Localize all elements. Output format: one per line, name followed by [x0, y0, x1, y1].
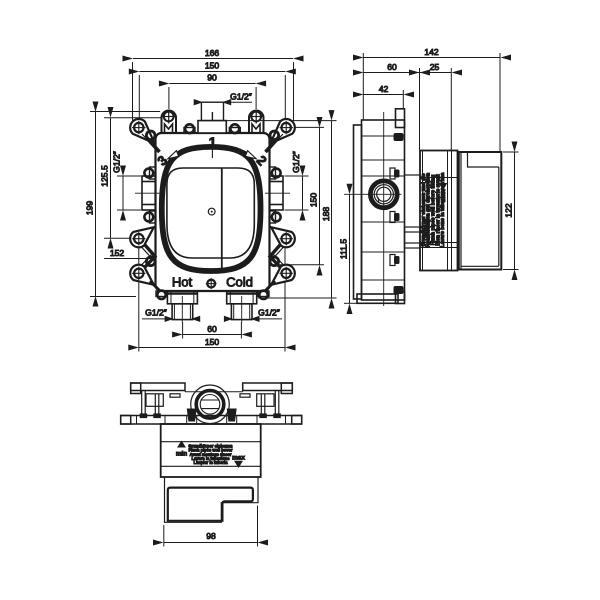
- svg-text:G1/2″: G1/2″: [145, 307, 167, 317]
- svg-text:122: 122: [504, 203, 514, 218]
- svg-text:42: 42: [379, 84, 389, 94]
- svg-text:G1/2″: G1/2″: [230, 92, 252, 102]
- svg-text:111.5: 111.5: [339, 239, 349, 259]
- svg-text:90: 90: [207, 73, 217, 83]
- svg-text:1: 1: [209, 134, 217, 150]
- svg-text:199: 199: [85, 201, 95, 216]
- svg-text:G1/2″: G1/2″: [291, 151, 301, 173]
- svg-text:max: max: [232, 455, 245, 462]
- svg-text:G1/2″: G1/2″: [112, 151, 122, 173]
- svg-text:60: 60: [387, 62, 397, 72]
- svg-text:max: max: [440, 189, 447, 202]
- svg-text:min: min: [176, 451, 187, 458]
- svg-text:Hot: Hot: [172, 274, 193, 289]
- svg-text:166: 166: [205, 48, 220, 58]
- svg-text:Cold: Cold: [226, 274, 253, 289]
- svg-text:150: 150: [309, 193, 319, 208]
- svg-text:150: 150: [205, 61, 220, 71]
- svg-text:152: 152: [110, 248, 125, 258]
- svg-text:142: 142: [424, 47, 439, 57]
- svg-text:150: 150: [205, 337, 220, 347]
- svg-text:25: 25: [430, 62, 440, 72]
- svg-text:60: 60: [207, 324, 217, 334]
- svg-text:98: 98: [206, 531, 216, 541]
- svg-text:188: 188: [321, 207, 331, 222]
- svg-text:Limpiar la tuberia: Limpiar la tuberia: [193, 460, 228, 465]
- svg-text:min: min: [424, 218, 431, 229]
- svg-text:125.5: 125.5: [100, 165, 110, 187]
- svg-text:G1/2″: G1/2″: [258, 307, 280, 317]
